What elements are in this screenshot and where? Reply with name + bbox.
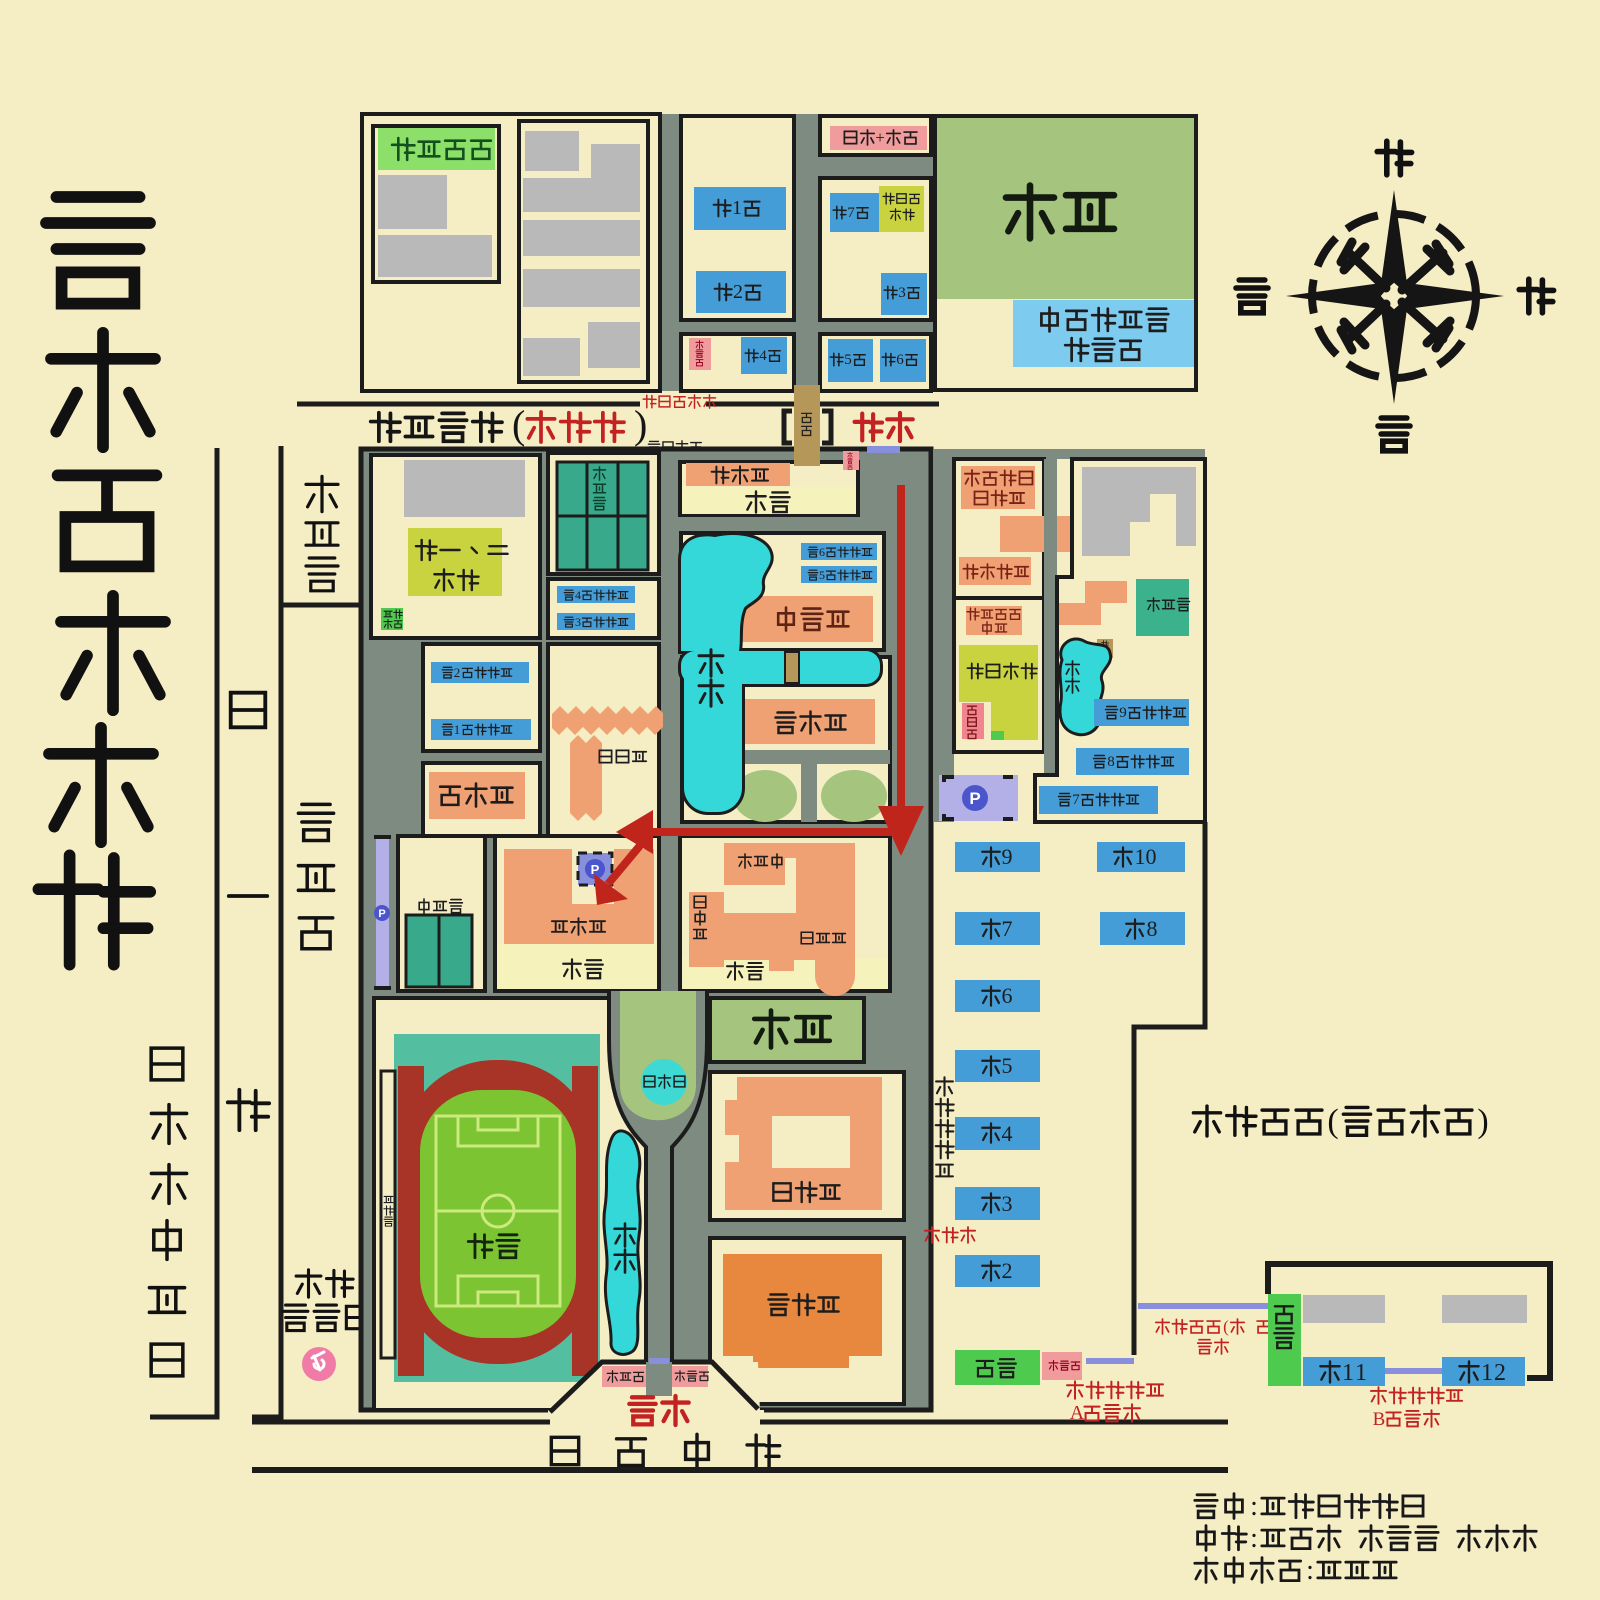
svg-text:1: 1 bbox=[1355, 1360, 1367, 1386]
svg-text:P: P bbox=[969, 789, 980, 808]
svg-text:6: 6 bbox=[819, 545, 825, 559]
svg-text:2: 2 bbox=[1002, 1258, 1013, 1283]
svg-text:0: 0 bbox=[1146, 844, 1157, 869]
svg-text:3: 3 bbox=[898, 285, 906, 301]
svg-text:1: 1 bbox=[1342, 1360, 1354, 1386]
svg-text:7: 7 bbox=[847, 205, 855, 221]
svg-text:4: 4 bbox=[1002, 1121, 1013, 1146]
svg-text:9: 9 bbox=[1119, 705, 1127, 721]
svg-text:5: 5 bbox=[819, 568, 825, 582]
svg-text:P: P bbox=[378, 908, 385, 920]
svg-text:8: 8 bbox=[1147, 916, 1158, 941]
svg-text::: : bbox=[1250, 1491, 1258, 1522]
svg-text:6: 6 bbox=[896, 352, 904, 368]
svg-text::: : bbox=[1306, 1555, 1314, 1586]
svg-text:3: 3 bbox=[575, 615, 581, 629]
svg-text:5: 5 bbox=[844, 352, 852, 368]
svg-text:7: 7 bbox=[1072, 792, 1080, 808]
svg-text:+: + bbox=[875, 128, 885, 147]
svg-text:3: 3 bbox=[1002, 1191, 1013, 1216]
svg-text:1: 1 bbox=[454, 722, 461, 737]
svg-text:): ) bbox=[1477, 1103, 1488, 1140]
svg-text:2: 2 bbox=[454, 665, 461, 680]
svg-text:(: ( bbox=[1327, 1103, 1338, 1140]
svg-text:P: P bbox=[591, 862, 600, 877]
svg-text:1: 1 bbox=[1481, 1360, 1493, 1386]
svg-text:8: 8 bbox=[1107, 754, 1115, 770]
svg-text:6: 6 bbox=[1002, 983, 1013, 1008]
svg-text:7: 7 bbox=[1002, 916, 1013, 941]
svg-text:(: ( bbox=[512, 402, 525, 447]
svg-text:9: 9 bbox=[1002, 844, 1013, 869]
svg-text:A: A bbox=[1070, 1402, 1085, 1424]
svg-text:4: 4 bbox=[759, 348, 767, 364]
svg-text:1: 1 bbox=[1135, 844, 1146, 869]
svg-text:4: 4 bbox=[575, 588, 581, 602]
svg-text::: : bbox=[1250, 1523, 1258, 1554]
svg-text:): ) bbox=[634, 402, 647, 447]
svg-text:1: 1 bbox=[732, 197, 742, 219]
svg-text:B: B bbox=[1373, 1409, 1386, 1430]
svg-text:5: 5 bbox=[1002, 1053, 1013, 1078]
svg-text:(: ( bbox=[1223, 1317, 1229, 1336]
svg-text:2: 2 bbox=[1494, 1360, 1506, 1386]
svg-text:2: 2 bbox=[733, 281, 743, 303]
